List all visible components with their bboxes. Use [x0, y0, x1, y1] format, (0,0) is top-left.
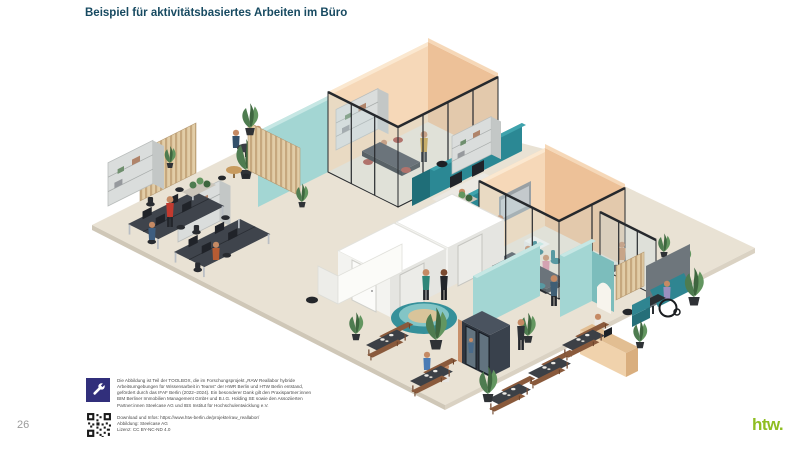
- license-text: Lizenz: CC BY-NC-ND 4.0: [117, 427, 348, 433]
- credit-links: Download und Infos: https://www.htw-berl…: [117, 412, 348, 438]
- page-number: 26: [17, 419, 29, 431]
- credits-block: Die Abbildung ist Teil der TOOLBOX, die …: [86, 378, 348, 438]
- presentation-slide: Beispiel für aktivitätsbasiertes Arbeite…: [0, 0, 800, 450]
- credit-line: Partner:innen Steelcase AG und IBS Insti…: [117, 403, 348, 409]
- qr-code: [86, 412, 112, 438]
- credit-paragraph: Die Abbildung ist Teil der TOOLBOX, die …: [117, 378, 348, 409]
- wrench-icon: [86, 378, 110, 402]
- htw-logo: htw.: [752, 415, 783, 435]
